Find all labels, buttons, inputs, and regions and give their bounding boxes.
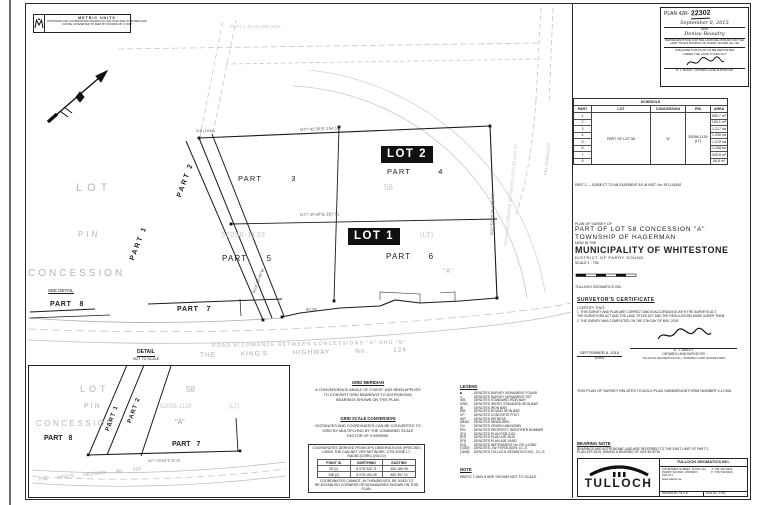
pin-big-label: PIN: [78, 230, 100, 239]
grid-scale-text: DISTANCES AND COORDINATES CAN BE CONVERT…: [290, 424, 446, 428]
note-title: NOTE: [460, 468, 472, 473]
plan-number-label: PLAN 42R-: [664, 12, 689, 18]
title-block: PLAN OF SURVEY OF PART OF LOT 58 CONCESS…: [575, 222, 727, 289]
schedule-title: SCHEDULE: [574, 99, 727, 105]
title-line: TOWNSHIP OF HAGERMAN: [575, 234, 727, 241]
schedule-col-header: PART: [574, 106, 592, 112]
detail-pin-label: PIN: [84, 403, 102, 411]
legend: LEGEND ■DENOTES SURVEY MONUMENT FOUND □D…: [460, 385, 570, 455]
grid-meridian-text: BEARINGS SHOWN ON THIS PLAN.: [290, 398, 446, 402]
certificate-text: 2. THE SURVEY WAS COMPLETED ON THE 27th …: [577, 320, 737, 324]
lot58-label: 58: [384, 183, 393, 192]
title-firm: TULLOCH GEOMATICS INC.: [575, 285, 727, 289]
north-arrow-icon: [48, 71, 107, 122]
detail-lot-label: LOT: [80, 384, 110, 394]
title-line: PART OF LOT 58 CONCESSION "A": [575, 226, 727, 233]
plan-number-value: 22302: [691, 10, 711, 20]
title-scale: SCALE 1 : 750: [575, 261, 727, 265]
part8-label: PART 8: [50, 301, 84, 309]
underlying-roads: [28, 8, 571, 343]
monument-annotation: SIB (1836): [196, 129, 215, 133]
bearing-annotation: N77°40'50"E 267.51: [300, 212, 340, 217]
bearing-note-text: PLAN 42R-2619, HAVING A BEARING OF N24°4…: [577, 451, 737, 455]
schedule-col-header: LOT: [592, 106, 651, 112]
grid-scale-title: GRID SCALE CONVERSION: [290, 417, 446, 422]
grid-meridian-title: GRID MERIDIAN: [290, 381, 446, 386]
grid-meridian-text: A CONVERGENCE ANGLE OF 0°48'20" HAS BEEN…: [290, 388, 446, 392]
metric-units-box: METRIC UNITS DISTANCES AND COORDINATES S…: [33, 14, 131, 33]
grid-meridian-text: TO CONVERT GRID BEARINGS TO ASTRONOMIC: [290, 393, 446, 397]
part4-label: PART 4: [387, 168, 444, 177]
detail-title: DETAIL: [137, 350, 155, 357]
certificate-text: THE SURVEYORS ACT AND THE LAND TITLES AC…: [577, 315, 737, 319]
surveyors-certificate: SURVEYOR'S CERTIFICATE I CERTIFY THAT: 1…: [577, 298, 737, 360]
coord-col-header: EASTING: [383, 460, 415, 465]
metric-m-icon: [34, 15, 45, 32]
detail-part7: PART 7: [172, 441, 200, 449]
schedule-area-cell: 46.8 m²: [711, 159, 727, 165]
detail-concession-label: CONCESSION: [36, 419, 115, 428]
legend-row: (1836)DENOTES TULLOCH GEOMATICS INC., O.…: [460, 451, 570, 455]
part7-label: PART 7: [177, 306, 211, 314]
deposit-text: UNDER THE LAND TITLES ACT: [664, 53, 745, 56]
coordinate-table: POINT ID NORTHING EASTING IB (1)5 078 34…: [317, 459, 416, 478]
schedule-concession-cell: "A": [651, 113, 686, 164]
detail-pin-number: 52058-1139: [160, 404, 192, 411]
certificate-signature-icon: [655, 327, 713, 343]
detail-part8: PART 8: [44, 435, 72, 443]
concession-big-label: CONCESSION: [28, 268, 125, 280]
metric-text: CAN BE CONVERTED TO FEET BY DIVIDING BY …: [47, 23, 147, 26]
easement-note: PART 2 — SUBJECT TO AN EASEMENT AS IN IN…: [575, 184, 681, 188]
part3-label: PART 3: [238, 175, 297, 184]
schedule-col-header: AREA: [711, 106, 727, 112]
detail-quote-a: "A": [175, 419, 185, 427]
tulloch-web: www.tulloch.ca: [662, 478, 709, 481]
registrar-rep-text: LAND TITLES DIVISION OF PARRY SOUND (No.…: [664, 42, 745, 48]
lt-label: (LT): [420, 231, 433, 240]
distance-annotation: 60.96: [306, 308, 317, 313]
tulloch-logo-text: TULLOCH: [585, 477, 653, 491]
grid-scale-text: GRID BY MULTIPLYING BY THE COMBINED SCAL…: [290, 429, 446, 433]
schedule-col-header: CONCESSION: [651, 106, 686, 112]
note-text: PARTS 7 AND 8 ARE SHOWN NOT TO SCALE.: [460, 475, 537, 479]
tulloch-drawn-by: DRAWN BY: M.A.P.: [660, 492, 704, 496]
bearing-note-title: BEARING NOTE: [577, 441, 737, 446]
lot-big-label: LOT: [76, 182, 112, 195]
schedule-part-cell: 8: [574, 159, 591, 165]
certificate-firm-line: TULLOCH GEOMATICS INC., ONTARIO LAND SUR…: [630, 357, 737, 360]
detail-subtitle: NOT TO SCALE: [133, 357, 159, 361]
schedule-lot-cell: PART OF LOT 58: [592, 113, 651, 164]
part5-label: PART 5: [222, 254, 272, 263]
certificate-date-caption: (DATE): [577, 357, 622, 360]
lot2-label: LOT 2: [381, 146, 433, 163]
legend-title: LEGEND: [460, 385, 570, 390]
detail-lt: (LT): [229, 404, 240, 411]
certificate-text: I CERTIFY THAT:: [577, 306, 737, 310]
tulloch-firm-name: TULLOCH GEOMATICS INC.: [660, 459, 747, 467]
registration-box: PLAN 42R- 22302 September 8, 2015 DATE D…: [660, 7, 749, 87]
coord-header: NAD83 (CSRS) (2010.0): [311, 454, 422, 458]
coord-col-header: NORTHING: [351, 460, 384, 465]
aols-submission-note: THIS PLAN OF SURVEY RELATES TO AOLS PLAN…: [577, 389, 732, 393]
part6-label: PART 6: [386, 252, 434, 261]
coord-row: SIB (2)5 078 154.05482 357.12: [318, 472, 415, 477]
bearing-note: BEARING NOTE BEARINGS ARE ASTRONOMIC AND…: [577, 441, 737, 455]
surveyor-signature-icon: [685, 56, 725, 68]
tulloch-logo: TULLOCH: [578, 459, 659, 496]
quote-a-label: "A": [443, 268, 453, 276]
coord-col-header: POINT ID: [318, 460, 351, 465]
coordinate-table-box: COORDINATES DERIVED FROM GPS OBSERVATION…: [308, 444, 425, 493]
survey-plan-sheet: LOT 2 LOT 1 PART 3 PART 4 PART 5 PART 6 …: [0, 0, 760, 505]
schedule-table: SCHEDULE PART LOT CONCESSION PIN AREA 12…: [573, 98, 728, 165]
tulloch-block: TULLOCH TULLOCH GEOMATICS INC. 105 BOWES…: [577, 458, 748, 497]
lot1-label: LOT 1: [348, 228, 400, 245]
tulloch-file-number: FILE No. 7702: [704, 492, 747, 496]
grid-scale-text: FACTOR OF 0.9999595.: [290, 434, 446, 438]
title-line: DISTRICT OF PARRY SOUND: [575, 256, 727, 261]
coord-footer: RE-ESTABLISH CORNERS OR BOUNDARIES SHOWN…: [311, 483, 422, 491]
registration-surveyor-line: D. J. BAILEY, ONTARIO LAND SURVEYOR: [664, 68, 745, 72]
detail-lot58: 58: [186, 385, 195, 394]
scale-bar: [575, 273, 637, 278]
certificate-title: SURVEYOR'S CERTIFICATE: [577, 298, 737, 304]
faint-top-reference: PART 1, PLAN 42R-2619: [230, 24, 281, 29]
see-detail-label: SEE DETAIL: [48, 288, 74, 294]
schedule-pin-cell: 52058-1139 (LT): [686, 113, 711, 164]
detail-annotation: N77°40'50"E 32.61: [148, 458, 181, 463]
pin-number-label: 52058-1139: [221, 231, 265, 240]
tulloch-fax: F: 705-746-9344: [711, 471, 745, 474]
schedule-col-header: PIN: [686, 106, 711, 112]
title-municipality: MUNICIPALITY OF WHITESTONE: [575, 245, 727, 255]
